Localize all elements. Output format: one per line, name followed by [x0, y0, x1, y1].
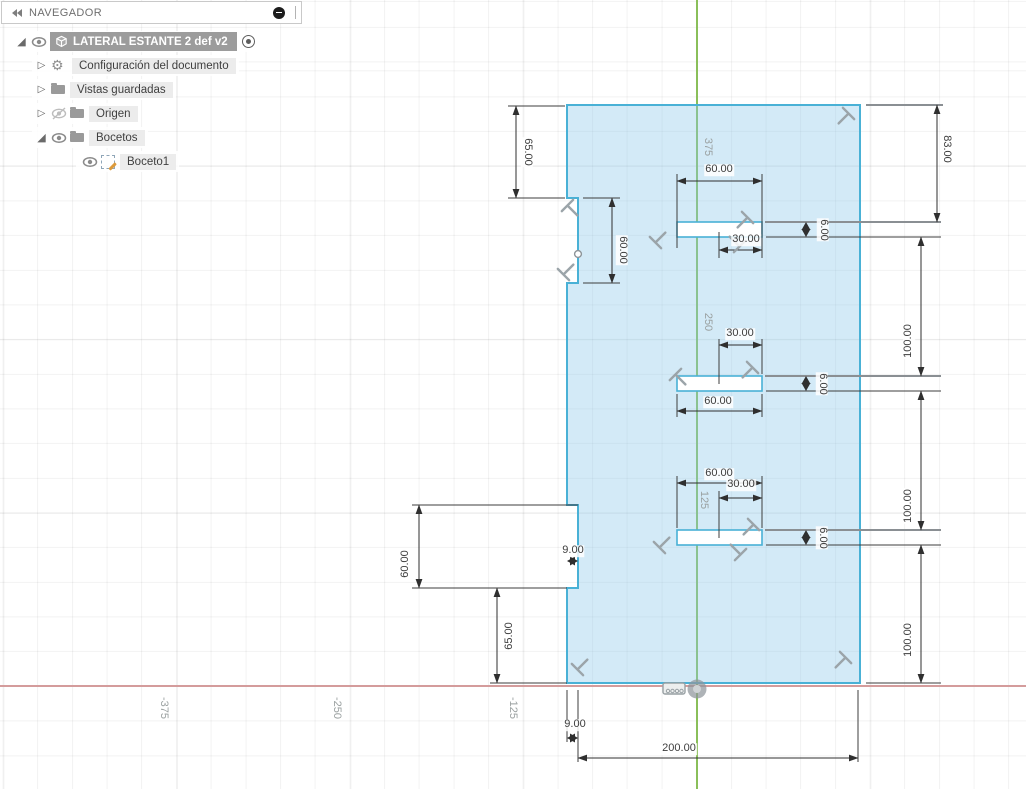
folder-icon: [70, 133, 84, 142]
eye-icon[interactable]: [51, 132, 67, 144]
x-axis-label: -250: [331, 697, 343, 719]
selected-component-block[interactable]: LATERAL ESTANTE 2 def v2: [50, 32, 237, 51]
sketch-icon: [101, 155, 115, 169]
folder-icon: [51, 85, 65, 94]
y-axis-label: 250: [702, 313, 714, 331]
eye-icon[interactable]: [82, 156, 98, 168]
dim-left-top-offset[interactable]: 65.00: [521, 137, 533, 167]
dim-slot3-height[interactable]: 6.00: [816, 526, 828, 549]
x-axis-label: -375: [158, 697, 170, 719]
tree-row-saved-views[interactable]: ▷ Vistas guardadas: [32, 79, 176, 100]
expand-arrow-icon[interactable]: ◢: [15, 35, 28, 48]
panel-minus-icon[interactable]: [273, 7, 285, 19]
dim-slot2-right-offset[interactable]: 30.00: [725, 328, 755, 340]
dim-slot1-width[interactable]: 60.00: [704, 164, 734, 176]
dim-slot1-height[interactable]: 6.00: [817, 218, 829, 241]
dim-total-width[interactable]: 200.00: [661, 743, 697, 755]
y-axis-label: 125: [698, 491, 710, 509]
collapsed-arrow-icon[interactable]: ▷: [35, 108, 48, 119]
dim-bottom-left-offset[interactable]: 65.00: [504, 621, 516, 651]
activate-component-radio[interactable]: [242, 35, 255, 48]
eye-off-icon[interactable]: [51, 107, 67, 120]
x-axis-label: -125: [507, 697, 519, 719]
dim-bottom-edge-offset[interactable]: 9.00: [563, 719, 586, 731]
collapsed-arrow-icon[interactable]: ▷: [35, 84, 48, 95]
y-axis-label: 375: [702, 138, 714, 156]
sketch-canvas[interactable]: 65.00 60.00 60.00 30.00 6.00 83.00 100.0…: [0, 0, 1026, 789]
panel-grip[interactable]: [295, 6, 297, 19]
dim-slot-gap-1[interactable]: 100.00: [903, 323, 915, 359]
ground-constraint-icon[interactable]: [663, 683, 685, 694]
folder-icon: [70, 109, 84, 118]
dim-slot3-right-offset[interactable]: 30.00: [726, 479, 756, 491]
tree-item-label[interactable]: Origen: [89, 106, 138, 122]
dim-bottom-notch-depth[interactable]: 9.00: [561, 545, 584, 557]
component-name: LATERAL ESTANTE 2 def v2: [73, 36, 228, 48]
navigator-title: NAVEGADOR: [29, 7, 273, 19]
gear-icon: ⚙: [51, 59, 67, 73]
tree-row-root-component[interactable]: ◢ LATERAL ESTANTE 2 def v2: [12, 31, 258, 52]
eye-icon[interactable]: [31, 36, 47, 48]
origin-point[interactable]: [688, 680, 707, 699]
dim-slot2-width[interactable]: 60.00: [703, 396, 733, 408]
dim-slot-gap-3[interactable]: 100.00: [903, 622, 915, 658]
dim-slot2-height[interactable]: 6.00: [816, 372, 828, 395]
dim-left-notch-height[interactable]: 60.00: [616, 235, 628, 265]
tree-item-label[interactable]: Configuración del documento: [72, 58, 236, 74]
collapsed-arrow-icon[interactable]: ▷: [35, 60, 48, 71]
dim-right-top-offset[interactable]: 83.00: [940, 134, 952, 164]
tree-row-origin[interactable]: ▷ Origen: [32, 103, 141, 124]
navigator-header: NAVEGADOR: [1, 1, 302, 24]
dim-slot-gap-2[interactable]: 100.00: [903, 488, 915, 524]
dim-bottom-notch-height[interactable]: 60.00: [400, 549, 412, 579]
tree-item-label[interactable]: Vistas guardadas: [70, 82, 173, 98]
tree-item-label[interactable]: Bocetos: [89, 130, 145, 146]
expand-arrow-icon[interactable]: ◢: [35, 131, 48, 144]
tree-row-sketch1[interactable]: Boceto1: [76, 151, 179, 172]
sketch-point[interactable]: [575, 251, 582, 258]
tree-row-sketches[interactable]: ◢ Bocetos: [32, 127, 148, 148]
dim-slot1-right-offset[interactable]: 30.00: [731, 234, 761, 246]
component-cube-icon: [54, 34, 69, 49]
tree-row-document-settings[interactable]: ▷ ⚙ Configuración del documento: [32, 55, 239, 76]
collapse-panel-icon[interactable]: [8, 9, 22, 17]
tree-item-label[interactable]: Boceto1: [120, 154, 176, 170]
